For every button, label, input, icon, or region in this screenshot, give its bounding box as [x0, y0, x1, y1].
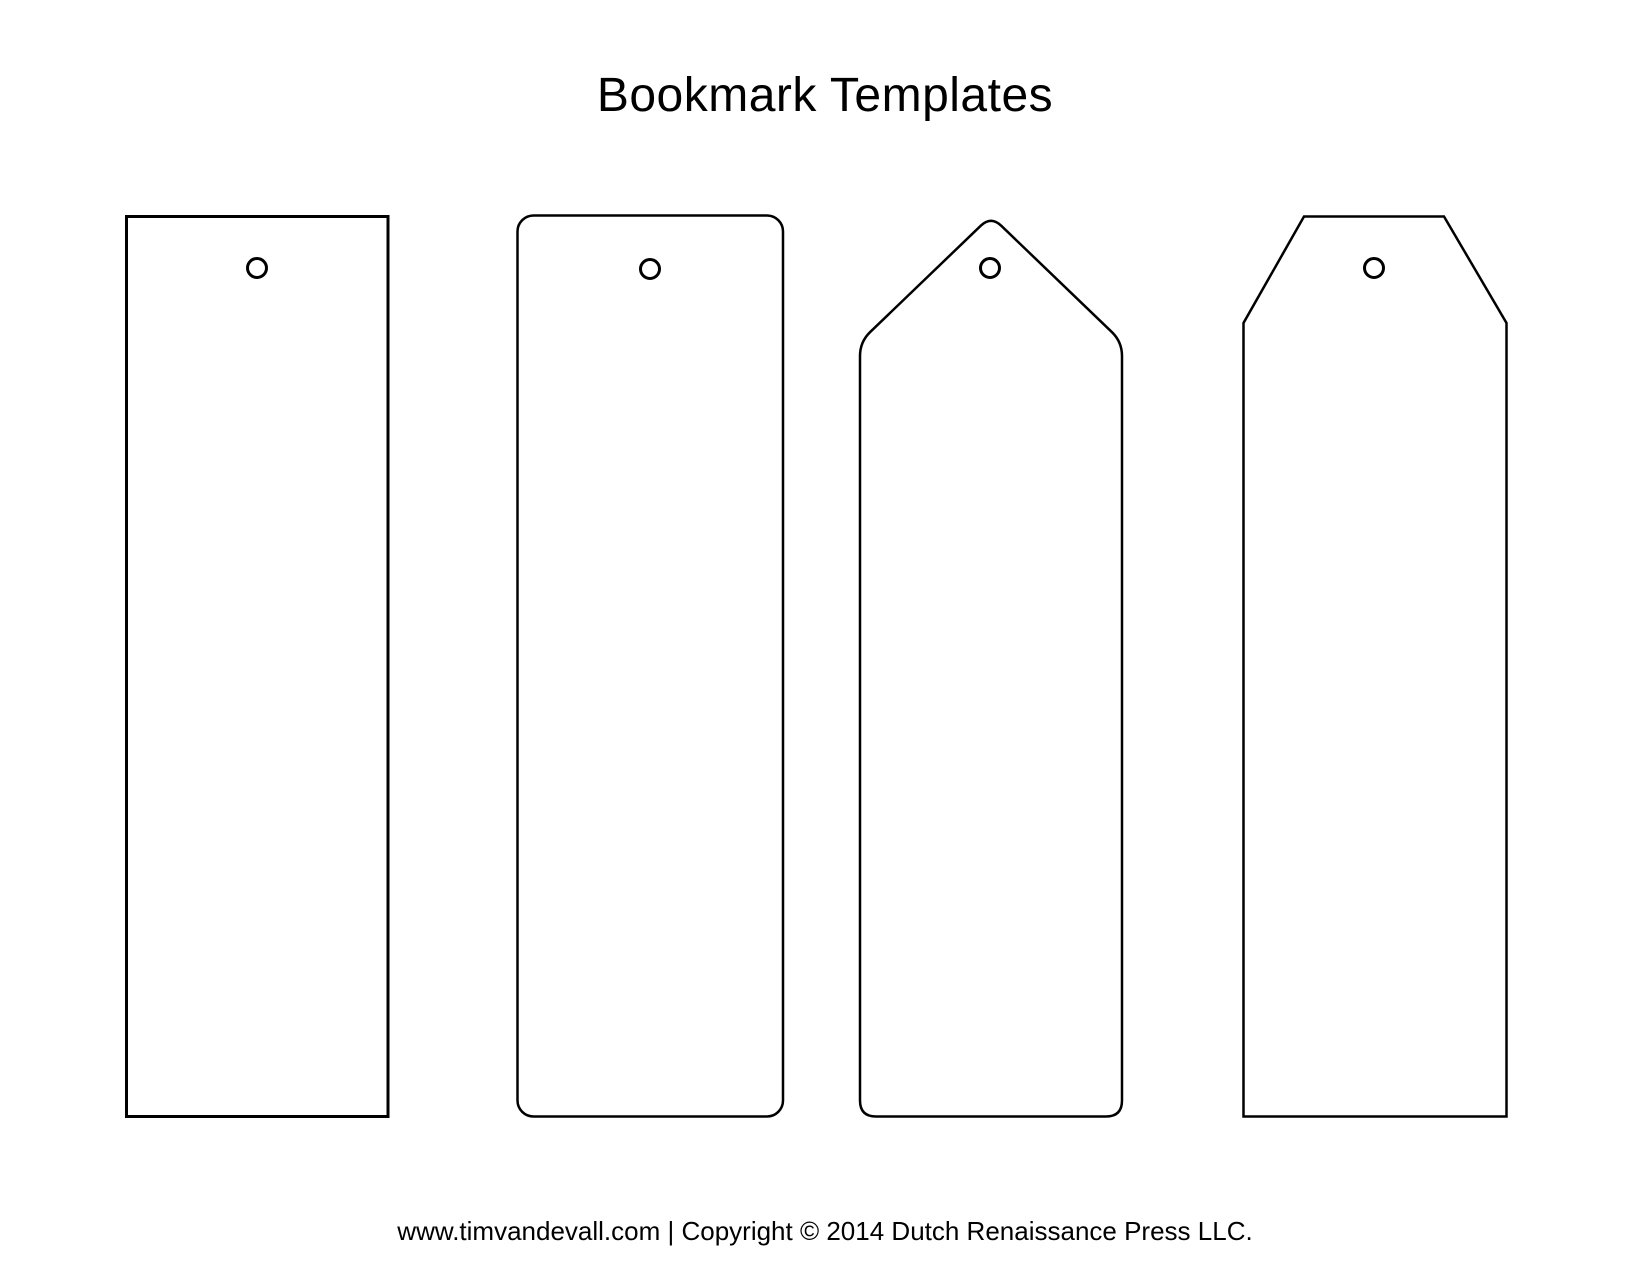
bookmark-shapes-canvas — [0, 0, 1650, 1275]
punch-hole — [248, 259, 267, 278]
pointed-tag-outline — [860, 221, 1122, 1117]
punch-hole — [1365, 259, 1384, 278]
bookmark-template-rounded-rectangle — [518, 216, 784, 1117]
bookmark-template-pointed-tag — [860, 221, 1122, 1117]
document-page: Bookmark Templates www.timvandevall.com … — [0, 0, 1650, 1275]
bookmark-template-rectangle — [127, 217, 389, 1117]
angled-tag-outline — [1244, 217, 1507, 1117]
rectangle-outline — [127, 217, 389, 1117]
bookmark-template-angled-tag — [1244, 217, 1507, 1117]
punch-hole — [641, 260, 660, 279]
rounded-rectangle-outline — [518, 216, 784, 1117]
punch-hole — [981, 259, 1000, 278]
footer-credit: www.timvandevall.com | Copyright © 2014 … — [0, 1217, 1650, 1246]
